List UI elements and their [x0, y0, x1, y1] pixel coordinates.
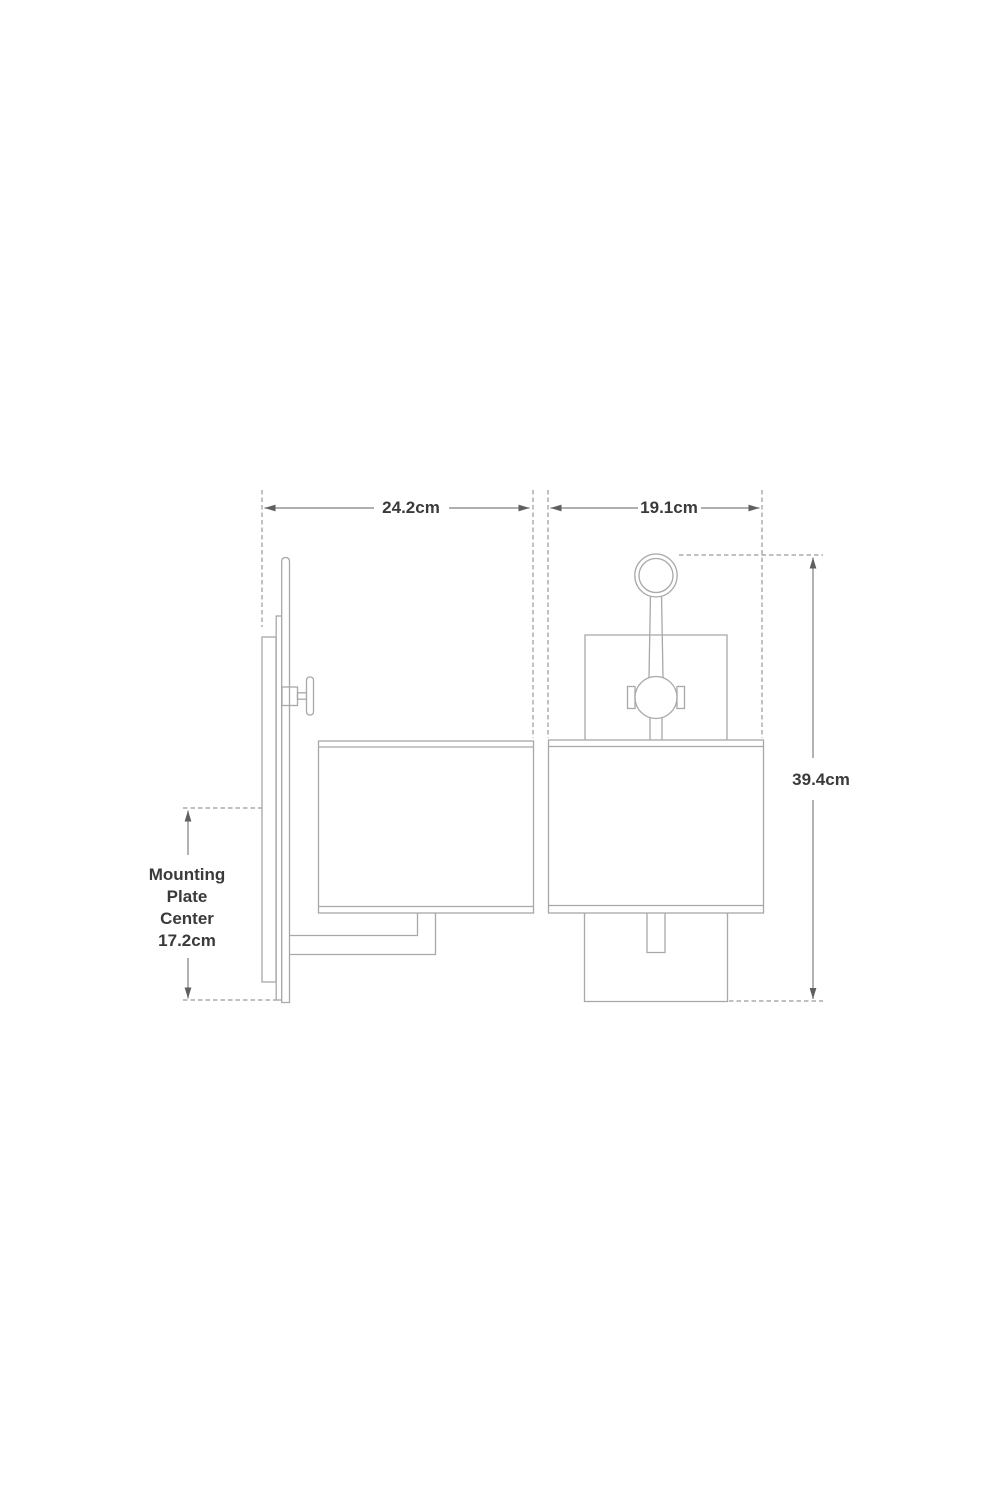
- mounting-plate-front-slab: [262, 637, 276, 982]
- dim-mounting-plate-center: Mounting Plate Center 17.2cm: [149, 811, 225, 999]
- fixture-profile-plate: [282, 558, 290, 1003]
- arrow-down-icon: [185, 988, 192, 999]
- shade-front-body: [549, 740, 764, 913]
- arrow-right-icon: [749, 505, 760, 512]
- knob-paddle-side: [307, 677, 314, 715]
- dim-label-line-4: 17.2cm: [158, 931, 216, 950]
- arrow-up-icon: [810, 558, 817, 569]
- stem-lower-front: [650, 717, 662, 741]
- center-knob-front: [635, 677, 677, 719]
- dim-label-side-depth: 24.2cm: [382, 498, 440, 517]
- knob-stem-side: [298, 693, 307, 699]
- knob-tab-left: [628, 687, 636, 709]
- sconce-dimension-diagram: 24.2cm 19.1cm 39.4cm Mounting Pla: [0, 0, 1000, 1500]
- dim-label-line-2: Plate: [167, 887, 208, 906]
- mounting-plate-mid-slab: [276, 616, 282, 1000]
- shade-side-body: [319, 741, 534, 913]
- front-view-drawing: [549, 554, 764, 1002]
- dim-label-front-width: 19.1cm: [640, 498, 698, 517]
- dim-label-overall-height: 39.4cm: [792, 770, 850, 789]
- dim-label-line-1: Mounting: [149, 865, 225, 884]
- finial-ring-outer: [635, 554, 677, 597]
- backplate-lower-front: [585, 913, 728, 1002]
- stem-upper-front: [649, 594, 663, 678]
- dim-side-depth: 24.2cm: [265, 498, 530, 517]
- swing-arm-upper: [285, 913, 418, 936]
- arrow-up-icon: [185, 811, 192, 822]
- candle-stem-front: [647, 913, 665, 953]
- arrow-left-icon: [551, 505, 562, 512]
- knob-tab-right: [677, 687, 685, 709]
- arrow-down-icon: [810, 988, 817, 999]
- dim-label-mounting-center: Mounting Plate Center 17.2cm: [149, 865, 225, 950]
- side-view-drawing: [262, 558, 534, 1003]
- shade-front: [549, 740, 764, 913]
- swing-arm-lower: [285, 913, 436, 955]
- arrow-right-icon: [519, 505, 530, 512]
- dim-label-line-3: Center: [160, 909, 214, 928]
- diagram-canvas: 24.2cm 19.1cm 39.4cm Mounting Pla: [0, 0, 1000, 1500]
- shade-side: [319, 741, 534, 913]
- dim-front-width: 19.1cm: [551, 498, 760, 517]
- dim-overall-height: 39.4cm: [792, 558, 850, 1000]
- arrow-left-icon: [265, 505, 276, 512]
